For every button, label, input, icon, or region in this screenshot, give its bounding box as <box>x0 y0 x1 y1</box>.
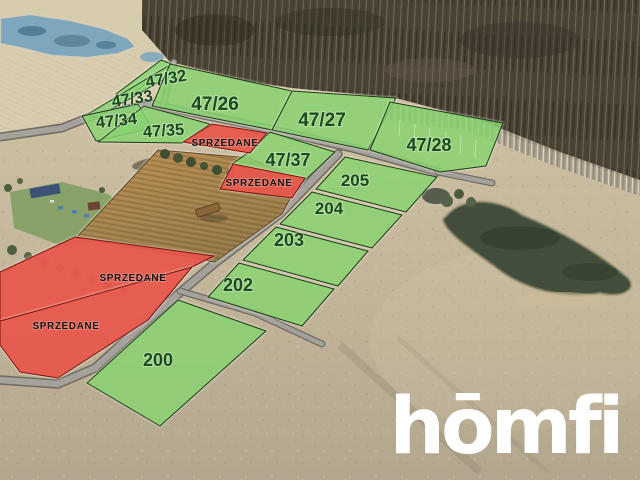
plot-label-47-27: 47/27 <box>298 110 346 131</box>
plot-label-47-35: 47/35 <box>142 121 184 142</box>
plot-label-205: 205 <box>341 171 369 190</box>
plot-label-202: 202 <box>223 275 253 295</box>
plot-label-47-37: 47/37 <box>265 150 310 170</box>
homfi-logo: hōmfi <box>389 382 620 472</box>
sold-label-4: SPRZEDANE <box>32 321 99 332</box>
farm-building <box>88 201 101 211</box>
plot-label-47-28: 47/28 <box>406 135 451 155</box>
sold-label-1: SPRZEDANE <box>191 138 258 149</box>
plot-label-200: 200 <box>143 350 173 370</box>
aerial-photo: 47/32 47/33 47/34 47/35 47/26 47/27 47/2… <box>0 0 640 480</box>
plot-label-47-26: 47/26 <box>191 94 239 115</box>
plot-label-203: 203 <box>274 230 304 250</box>
plot-label-204: 204 <box>315 199 344 218</box>
sold-label-3: SPRZEDANE <box>99 273 166 284</box>
sold-label-2: SPRZEDANE <box>225 178 292 189</box>
aerial-plot-map: 47/32 47/33 47/34 47/35 47/26 47/27 47/2… <box>0 0 640 480</box>
